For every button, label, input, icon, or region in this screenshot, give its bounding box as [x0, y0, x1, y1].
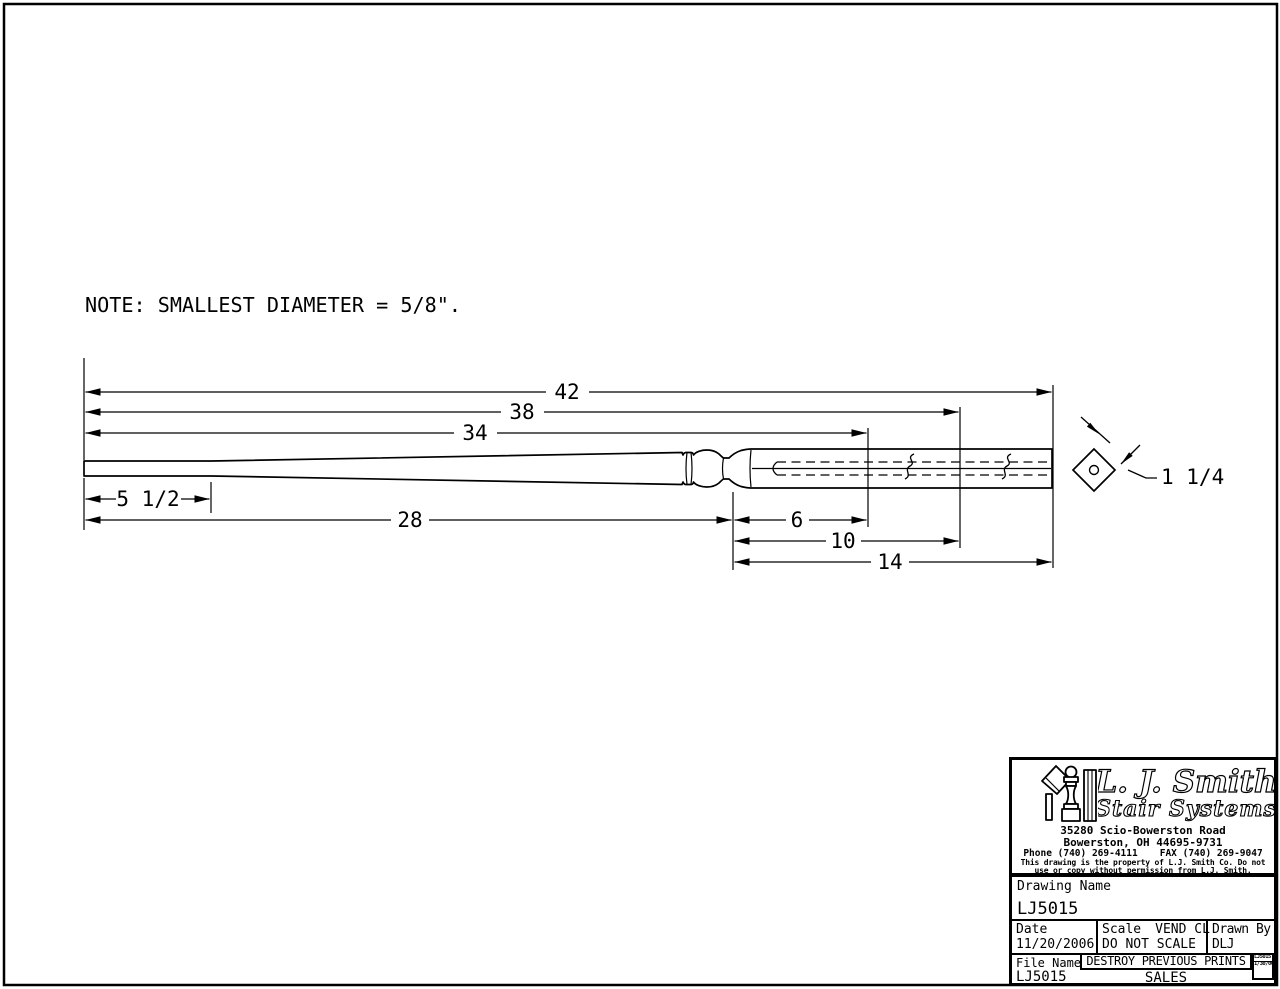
title-block-meta-row: Date 11/20/2006 ScaleVEND CL DO NOT SCAL…	[1012, 921, 1274, 955]
center-hole	[1090, 466, 1099, 475]
turning-ring-lines	[686, 450, 751, 487]
revision-stamp: LJ5015 1/30/06	[1252, 955, 1274, 980]
company-name: L. J. Smith	[1098, 764, 1274, 800]
company-brand-text: L. J. Smith Stair Systems	[1098, 760, 1274, 822]
scale-label: Scale	[1102, 922, 1141, 937]
scale-cell: ScaleVEND CL DO NOT SCALE	[1098, 921, 1208, 953]
legal-line2: use or copy without permission from L.J.…	[1012, 867, 1274, 875]
stamp-line2: 1/30/06	[1254, 962, 1272, 968]
drawing-name-cell: Drawing Name LJ5015	[1012, 877, 1274, 921]
hidden-hole-lines	[752, 454, 1051, 479]
sales-note: SALES	[1080, 970, 1252, 986]
dimension-42-label: 42	[554, 380, 579, 404]
drawing-name-value: LJ5015	[1017, 899, 1269, 919]
dimension-14-label: 14	[877, 550, 902, 574]
file-name-value: LJ5015	[1016, 969, 1067, 985]
dimension-34-label: 34	[462, 421, 487, 445]
title-block-header: L. J. Smith Stair Systems 35280 Scio-Bow…	[1012, 760, 1274, 877]
title-block: L. J. Smith Stair Systems 35280 Scio-Bow…	[1009, 757, 1277, 986]
date-cell: Date 11/20/2006	[1012, 921, 1098, 953]
square-section-diamond	[1073, 449, 1115, 491]
date-value: 11/20/2006	[1016, 937, 1092, 952]
drawn-by-value: DLJ	[1212, 937, 1271, 952]
lj-smith-logo-icon	[1040, 763, 1098, 823]
dimension-6-label: 6	[791, 508, 804, 532]
file-name-row: File Name LJ5015 DESTROY PREVIOUS PRINTS…	[1012, 955, 1274, 983]
scale-value: VEND CL	[1155, 922, 1210, 937]
company-tagline: Stair Systems	[1098, 796, 1274, 822]
file-name-label: File Name	[1016, 956, 1081, 970]
note-text: NOTE: SMALLEST DIAMETER = 5/8".	[85, 293, 461, 317]
dimension-28-label: 28	[397, 508, 422, 532]
drawn-by-cell: Drawn By DLJ	[1208, 921, 1275, 953]
drawing-sheet: NOTE: SMALLEST DIAMETER = 5/8". 42 38 34	[0, 0, 1280, 989]
legal-notice: This drawing is the property of L.J. Smi…	[1012, 859, 1274, 874]
destroy-prints-note: DESTROY PREVIOUS PRINTS	[1080, 955, 1252, 970]
drawing-name-label: Drawing Name	[1017, 879, 1269, 894]
date-label: Date	[1016, 922, 1092, 937]
dimension-10-label: 10	[830, 529, 855, 553]
drawn-by-label: Drawn By	[1212, 922, 1271, 937]
scale-note: DO NOT SCALE	[1102, 937, 1202, 952]
dimension-1-1-4-label: 1 1/4	[1161, 465, 1224, 489]
cross-section-detail: 1 1/4	[1073, 417, 1224, 491]
dimension-5-1-2-label: 5 1/2	[116, 487, 179, 511]
dimension-38-label: 38	[509, 400, 534, 424]
